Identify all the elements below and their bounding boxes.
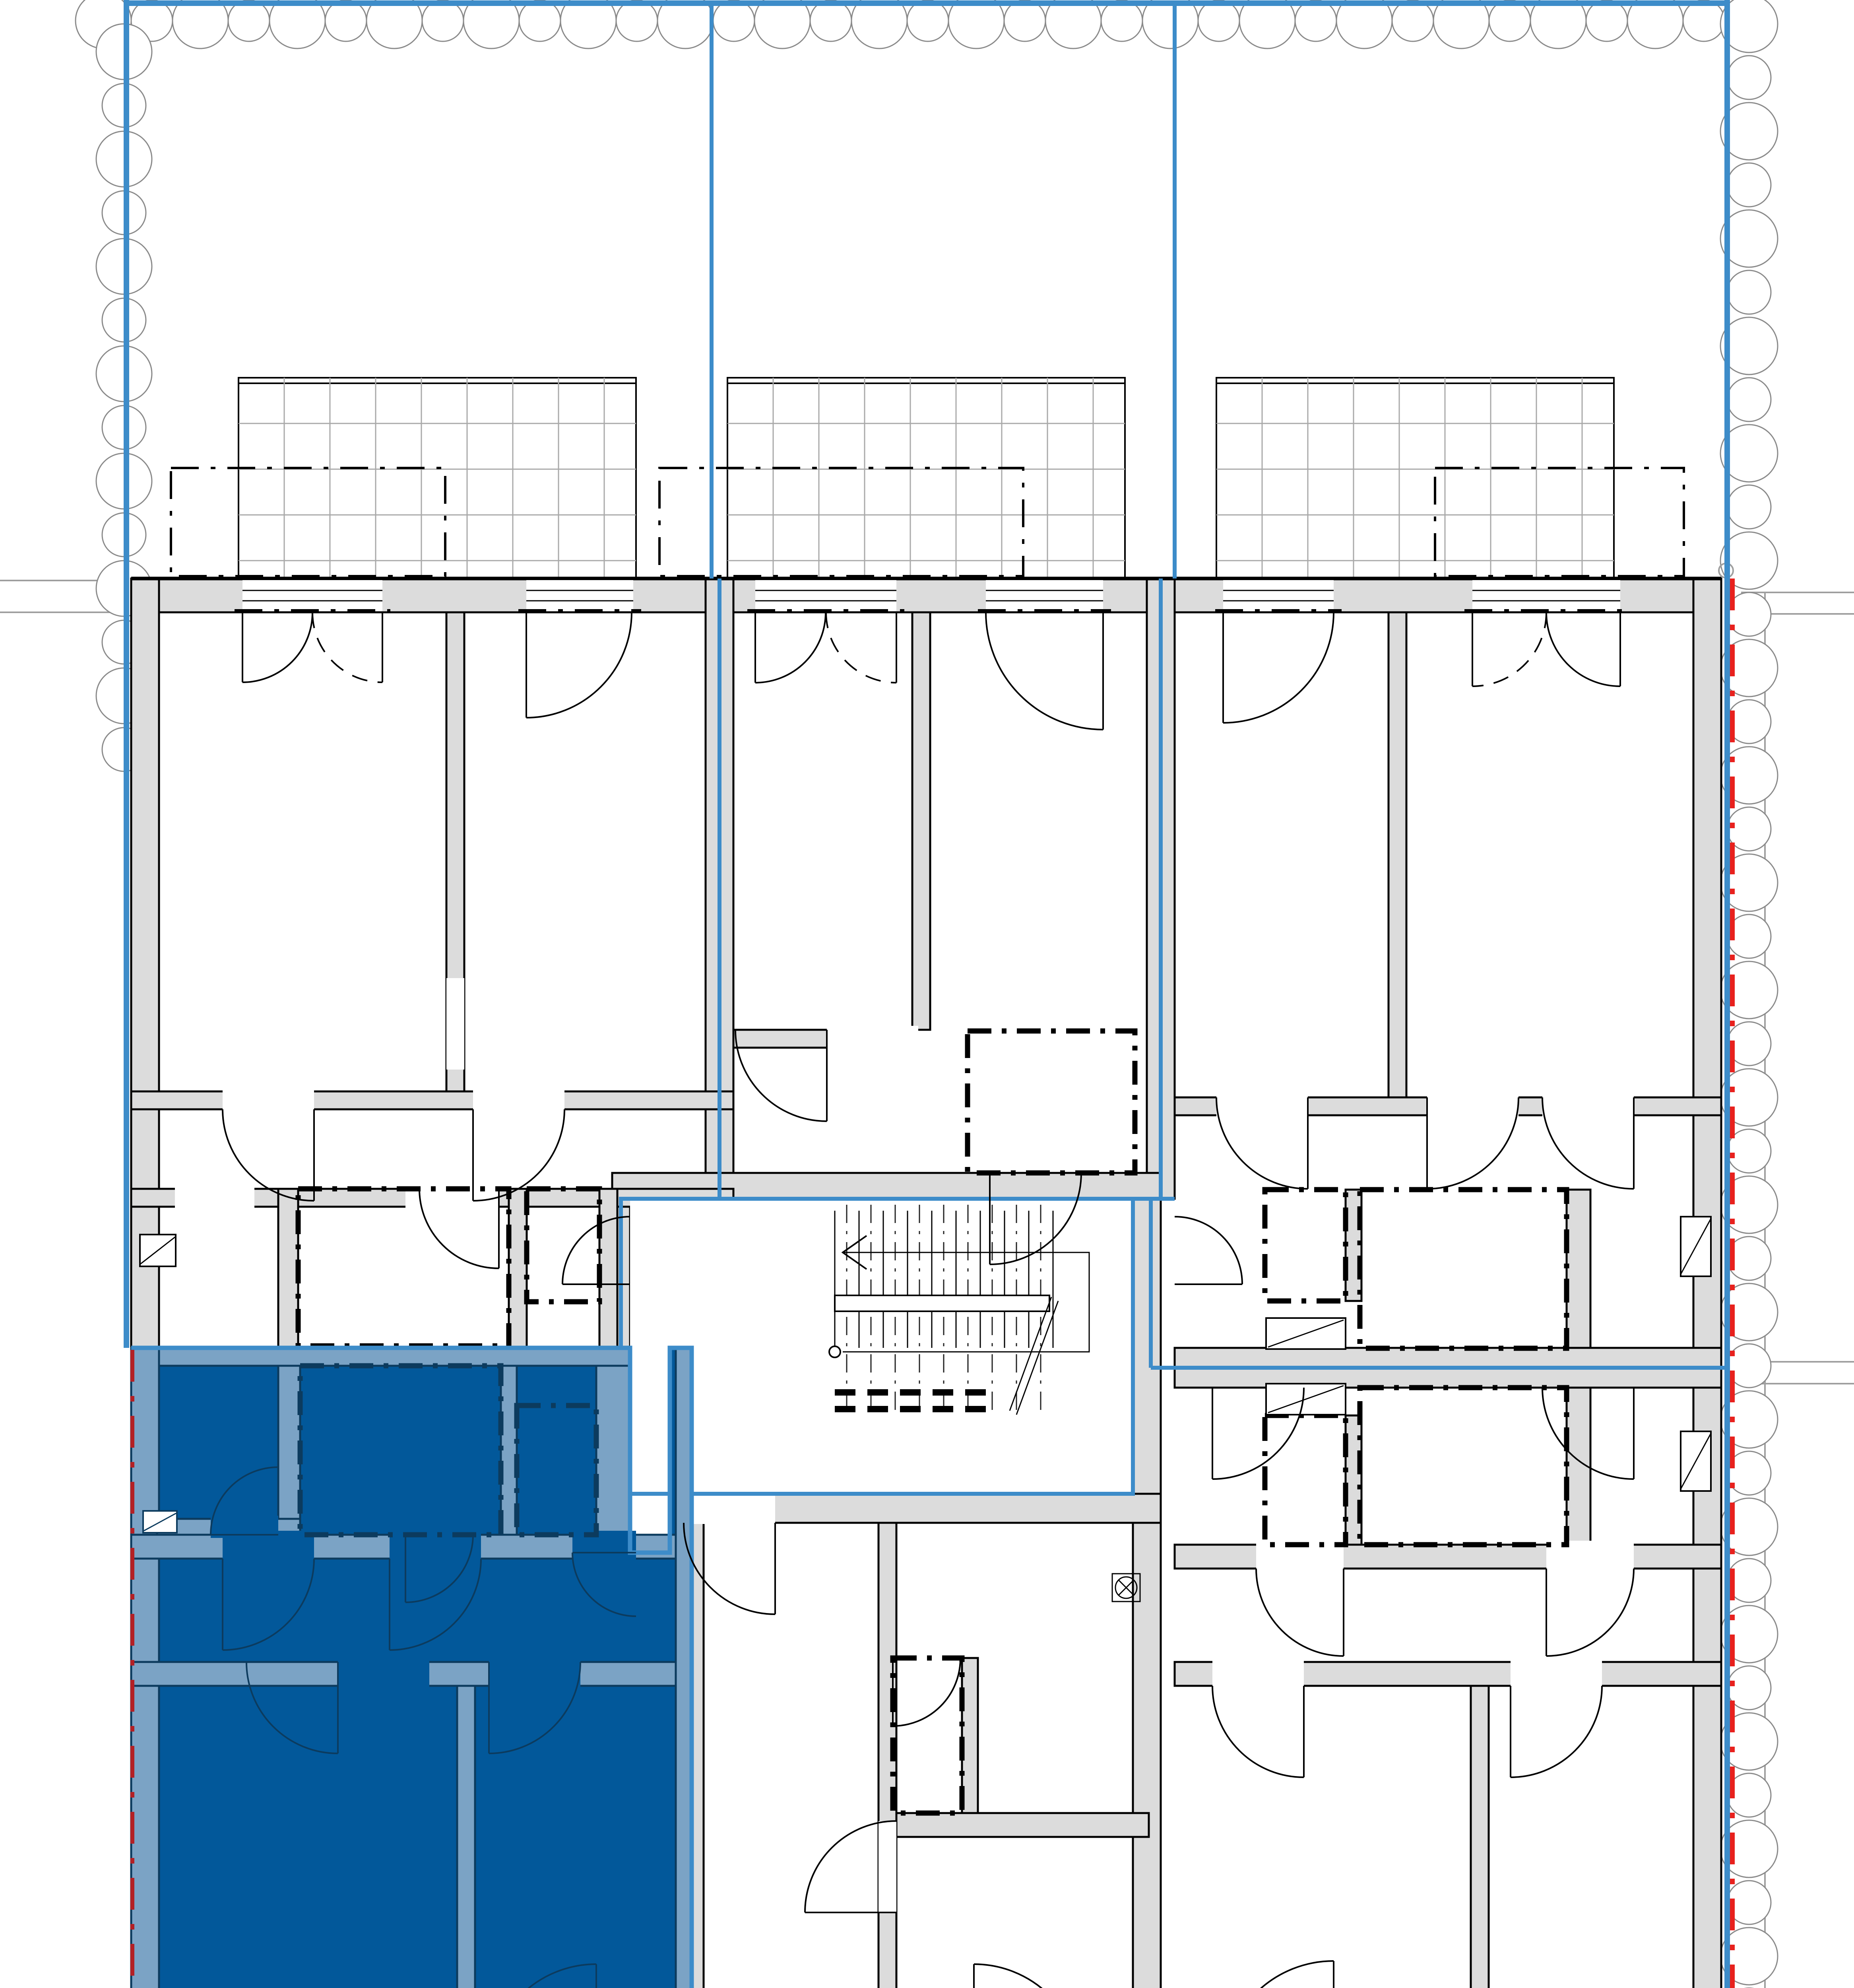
hedge-circle — [1004, 0, 1045, 41]
hedge-circle — [1239, 0, 1295, 49]
hedge-circle — [1392, 0, 1433, 41]
interior-wall — [278, 1189, 298, 1348]
door-opening — [242, 580, 382, 611]
hedge-circle — [325, 0, 367, 41]
room-divider — [1471, 1686, 1489, 1988]
hedge-circle — [948, 0, 1004, 49]
hedge-circle — [1530, 0, 1586, 49]
hedge-circle — [1727, 56, 1771, 99]
party-wall — [1133, 1523, 1161, 1988]
highlighted-unit[interactable] — [117, 1348, 692, 1988]
hedge-circle — [228, 0, 270, 41]
corridor — [630, 1348, 670, 1553]
window-opening — [986, 580, 1103, 611]
door-opening — [1546, 1541, 1634, 1573]
hedge-circle — [1336, 0, 1392, 49]
door-opening — [1427, 1093, 1518, 1119]
hedge-circle — [1295, 0, 1336, 41]
hedge-circle — [270, 0, 325, 49]
door-opening — [1216, 1093, 1308, 1119]
hedge-circle — [657, 0, 713, 49]
door-opening — [755, 580, 896, 611]
interior-wall — [1567, 1190, 1590, 1348]
door-opening — [827, 1026, 918, 1052]
hedge-circle — [422, 0, 463, 41]
window-opening — [526, 580, 633, 611]
door-opening — [1472, 580, 1620, 611]
door-opening — [175, 1185, 254, 1211]
interior-wall — [509, 1189, 527, 1348]
hedge-circle — [1101, 0, 1142, 41]
door-opening — [879, 1821, 896, 1912]
room-divider — [1389, 612, 1406, 1097]
hedge-circle — [907, 0, 948, 41]
hedge-circle — [173, 0, 228, 49]
hedge-circle — [1586, 0, 1627, 41]
hedge-circle — [754, 0, 810, 49]
interior-wall — [131, 1091, 733, 1109]
door-opening — [1542, 1093, 1634, 1119]
hedge-circle — [519, 0, 560, 41]
hedge-circle — [463, 0, 519, 49]
terrace-top-left — [239, 378, 636, 579]
door-opening — [684, 1495, 775, 1524]
hedge-circle — [1433, 0, 1489, 49]
door-opening — [473, 1087, 564, 1113]
window-opening — [1223, 580, 1334, 611]
hedge-circle — [810, 0, 851, 41]
door-opening — [446, 978, 464, 1070]
hedge-circle — [851, 0, 907, 49]
stairwell-east-wall — [1133, 1199, 1161, 1494]
hedge-circle — [713, 0, 754, 41]
east-wall — [1693, 579, 1721, 1988]
hedge-circle — [1142, 0, 1198, 49]
hedge-circle — [1627, 0, 1683, 49]
hedge-circle — [1198, 0, 1239, 41]
door-opening — [223, 1087, 314, 1113]
interior-wall — [896, 1813, 1149, 1837]
hedge-circle — [1045, 0, 1101, 49]
hedge-circle — [1683, 0, 1724, 41]
hedge-circle — [1727, 378, 1771, 421]
door-opening — [1212, 1658, 1304, 1690]
hedge-circle — [616, 0, 657, 41]
handrail — [835, 1295, 1049, 1311]
hedge-circle — [560, 0, 616, 49]
interior-wall — [599, 1189, 617, 1348]
terrace-top-right — [1216, 378, 1614, 579]
hedge-circle — [1727, 270, 1771, 314]
room-divider — [912, 612, 930, 1030]
hedge-circle — [1727, 163, 1771, 207]
door-opening — [1511, 1658, 1602, 1690]
terrace-top-middle — [727, 378, 1125, 579]
handrail-post — [829, 1346, 840, 1357]
hedge-circle — [1727, 485, 1771, 529]
floor-plan: HUP PPS — [0, 0, 1854, 1988]
hedge-circle — [1489, 0, 1530, 41]
hedge-circle — [367, 0, 422, 49]
